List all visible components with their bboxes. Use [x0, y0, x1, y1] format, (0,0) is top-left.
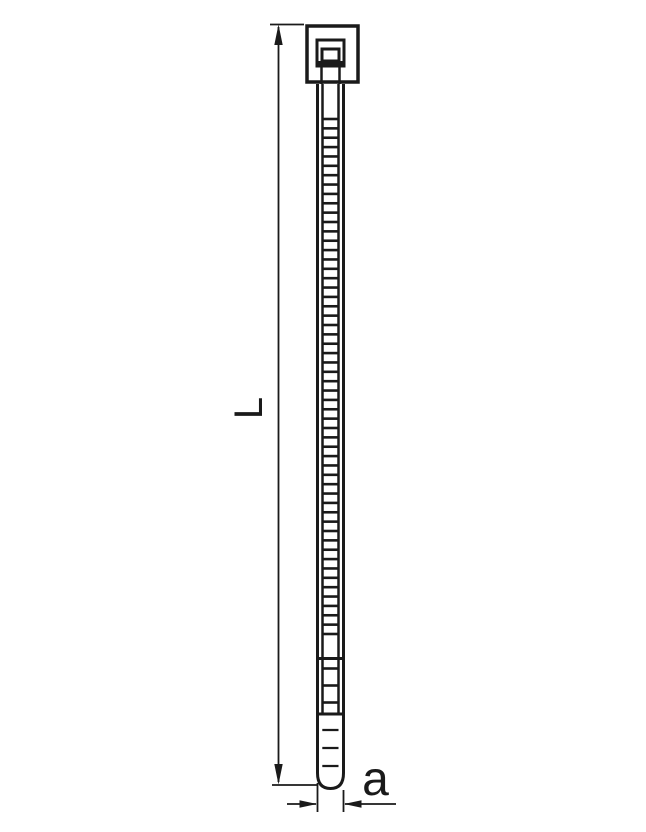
head-outer-outline	[307, 26, 358, 82]
head-locking-pawl	[316, 61, 346, 68]
width-label: a	[362, 753, 389, 806]
tie-strap	[316, 84, 345, 789]
strap-teeth	[323, 119, 339, 634]
drawing-canvas: L a	[0, 0, 646, 832]
width-arrow-left-icon	[344, 800, 362, 808]
width-arrow-right-icon	[300, 800, 318, 808]
length-arrow-down-icon	[274, 764, 282, 785]
length-arrow-up-icon	[274, 25, 282, 46]
length-dimension: L	[227, 25, 317, 786]
strap-tip-ridges	[322, 730, 338, 766]
tie-head	[307, 26, 358, 84]
cable-tie-diagram: L a	[0, 0, 646, 832]
strap-teeth-transition	[323, 669, 339, 703]
length-label: L	[227, 397, 271, 419]
head-slot-inner	[322, 49, 339, 61]
